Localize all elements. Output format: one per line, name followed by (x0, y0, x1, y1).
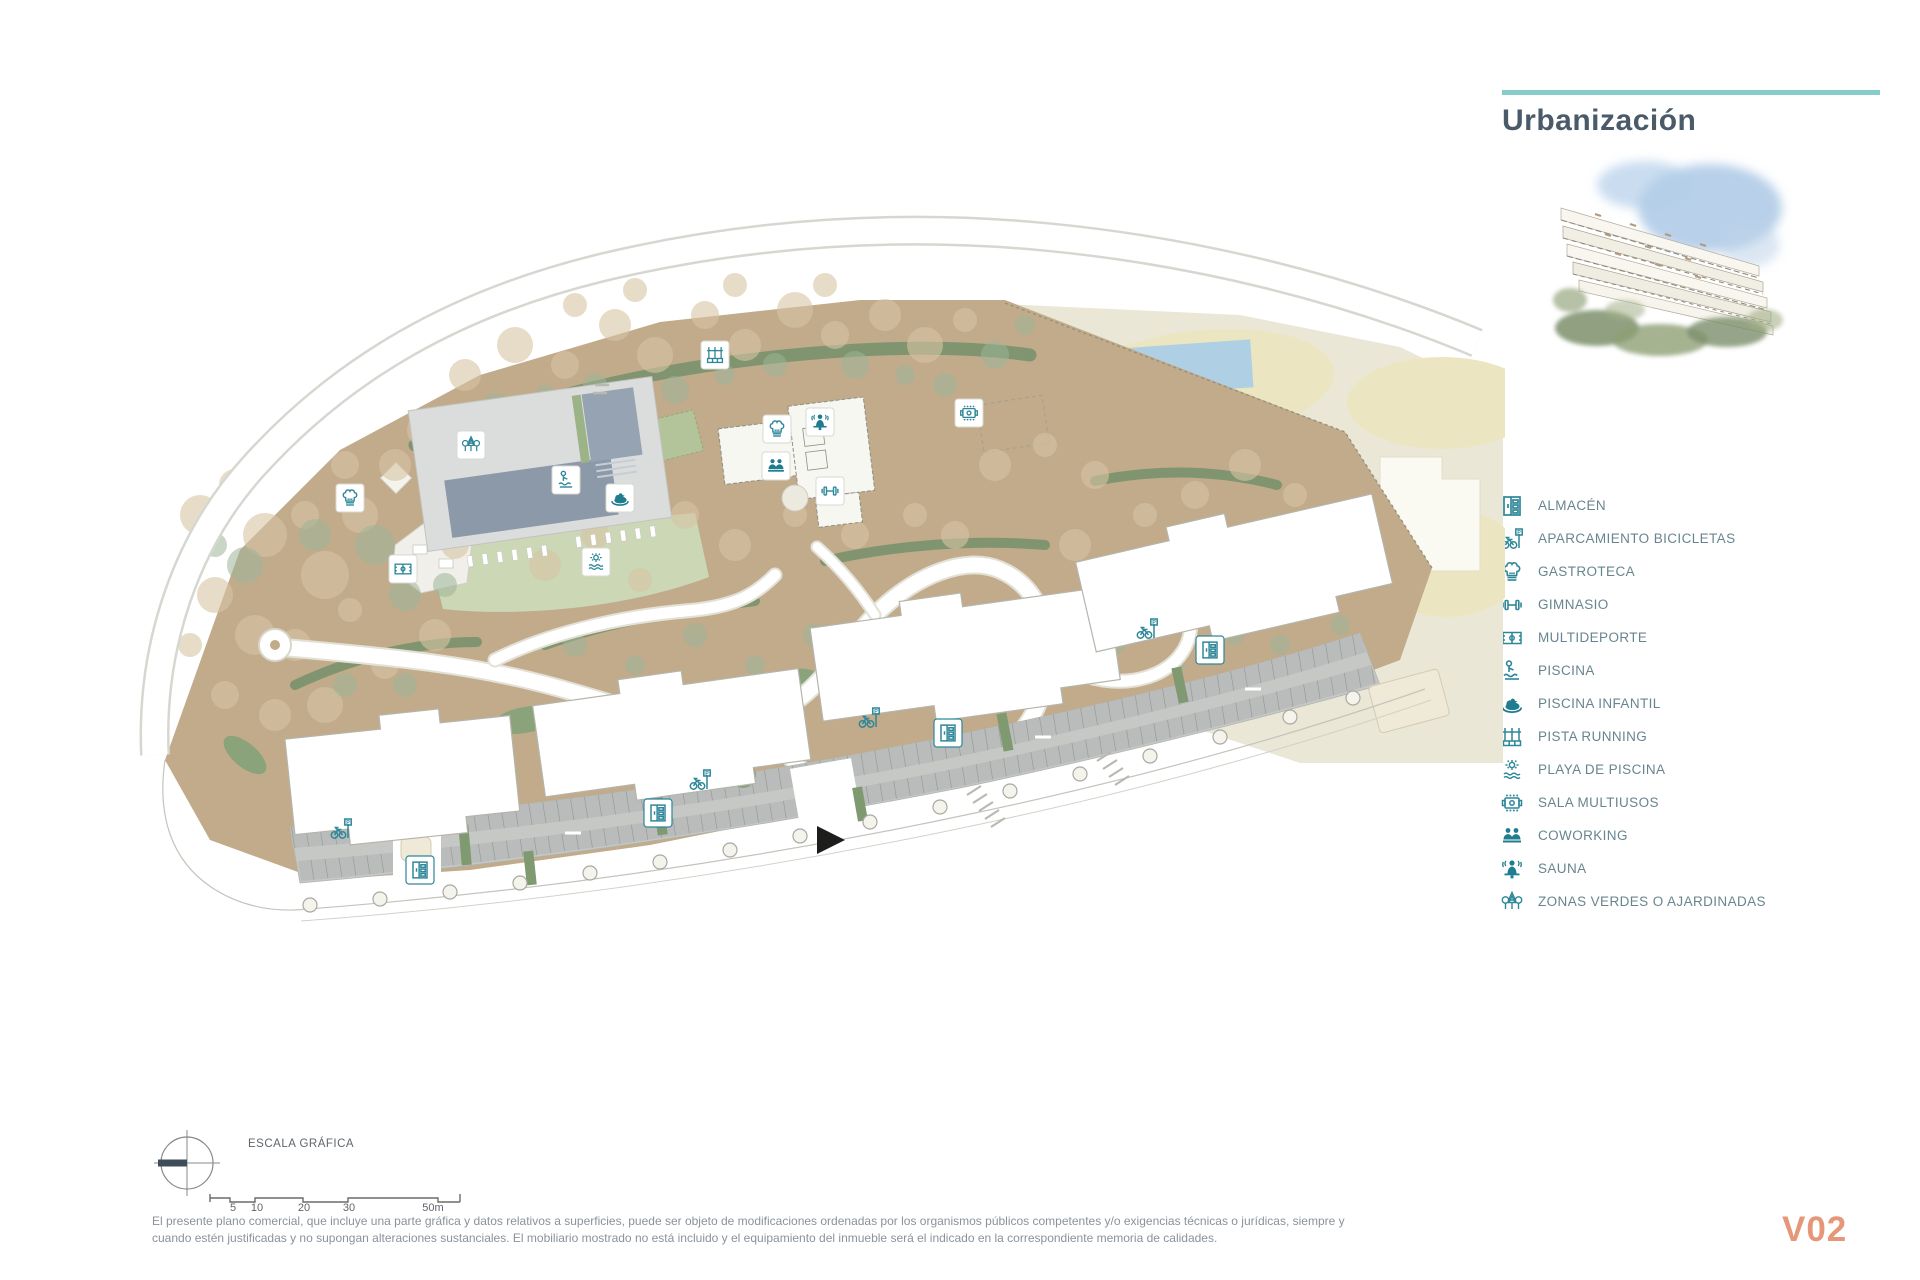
legend-label: PLAYA DE PISCINA (1538, 762, 1665, 777)
scale-bar-label: ESCALA GRÁFICA (248, 1138, 354, 1150)
legend-item-gastroteca: GASTROTECA (1496, 555, 1766, 588)
legend-item-aparcamiento-bicicletas: APARCAMIENTO BICICLETAS (1496, 522, 1766, 555)
building-watercolor-image (1535, 150, 1797, 368)
disclaimer-line-1: El presente plano comercial, que incluye… (152, 1213, 1442, 1230)
legend-item-almacen: ALMACÉN (1496, 489, 1766, 522)
legend-item-piscina: PISCINA (1496, 654, 1766, 687)
sheet-version-code: V02 (1782, 1210, 1847, 1250)
upper-pool (582, 387, 643, 462)
legend-item-zonas-verdes: ZONAS VERDES O AJARDINADAS (1496, 885, 1766, 918)
legend-label: GASTROTECA (1538, 564, 1635, 579)
legend-label: PISCINA INFANTIL (1538, 696, 1661, 711)
round-plaza (782, 485, 808, 511)
disclaimer-line-2: cuando estén justificadas y no supongan … (152, 1230, 1442, 1247)
legend-item-multideporte: MULTIDEPORTE (1496, 621, 1766, 654)
legend-item-piscina-infantil: PISCINA INFANTIL (1496, 687, 1766, 720)
legal-disclaimer: El presente plano comercial, que incluye… (152, 1213, 1442, 1247)
map-legend: ALMACÉN APARCAMIENTO BICICLETAS GASTROTE… (1496, 489, 1766, 918)
page-title: Urbanización (1502, 104, 1696, 138)
legend-label: COWORKING (1538, 828, 1628, 843)
legend-label: ALMACÉN (1538, 498, 1606, 513)
legend-label: GIMNASIO (1538, 597, 1609, 612)
legend-item-sala-multiusos: SALA MULTIUSOS (1496, 786, 1766, 819)
legend-item-gimnasio: GIMNASIO (1496, 588, 1766, 621)
teal-divider-rule (1502, 90, 1880, 95)
legend-label: SALA MULTIUSOS (1538, 795, 1659, 810)
legend-label: PISCINA (1538, 663, 1595, 678)
entrance-arrow-marker (817, 826, 845, 854)
legend-item-coworking: COWORKING (1496, 819, 1766, 852)
plan-sheet-page: P (0, 0, 1920, 1280)
legend-item-sauna: SAUNA (1496, 852, 1766, 885)
legend-label: MULTIDEPORTE (1538, 630, 1647, 645)
legend-item-playa-de-piscina: PLAYA DE PISCINA (1496, 753, 1766, 786)
legend-label: APARCAMIENTO BICICLETAS (1538, 531, 1736, 546)
site-plan-drawing (95, 215, 1505, 985)
legend-label: SAUNA (1538, 861, 1587, 876)
legend-label: ZONAS VERDES O AJARDINADAS (1538, 894, 1766, 909)
legend-item-pista-running: PISTA RUNNING (1496, 720, 1766, 753)
legend-label: PISTA RUNNING (1538, 729, 1647, 744)
